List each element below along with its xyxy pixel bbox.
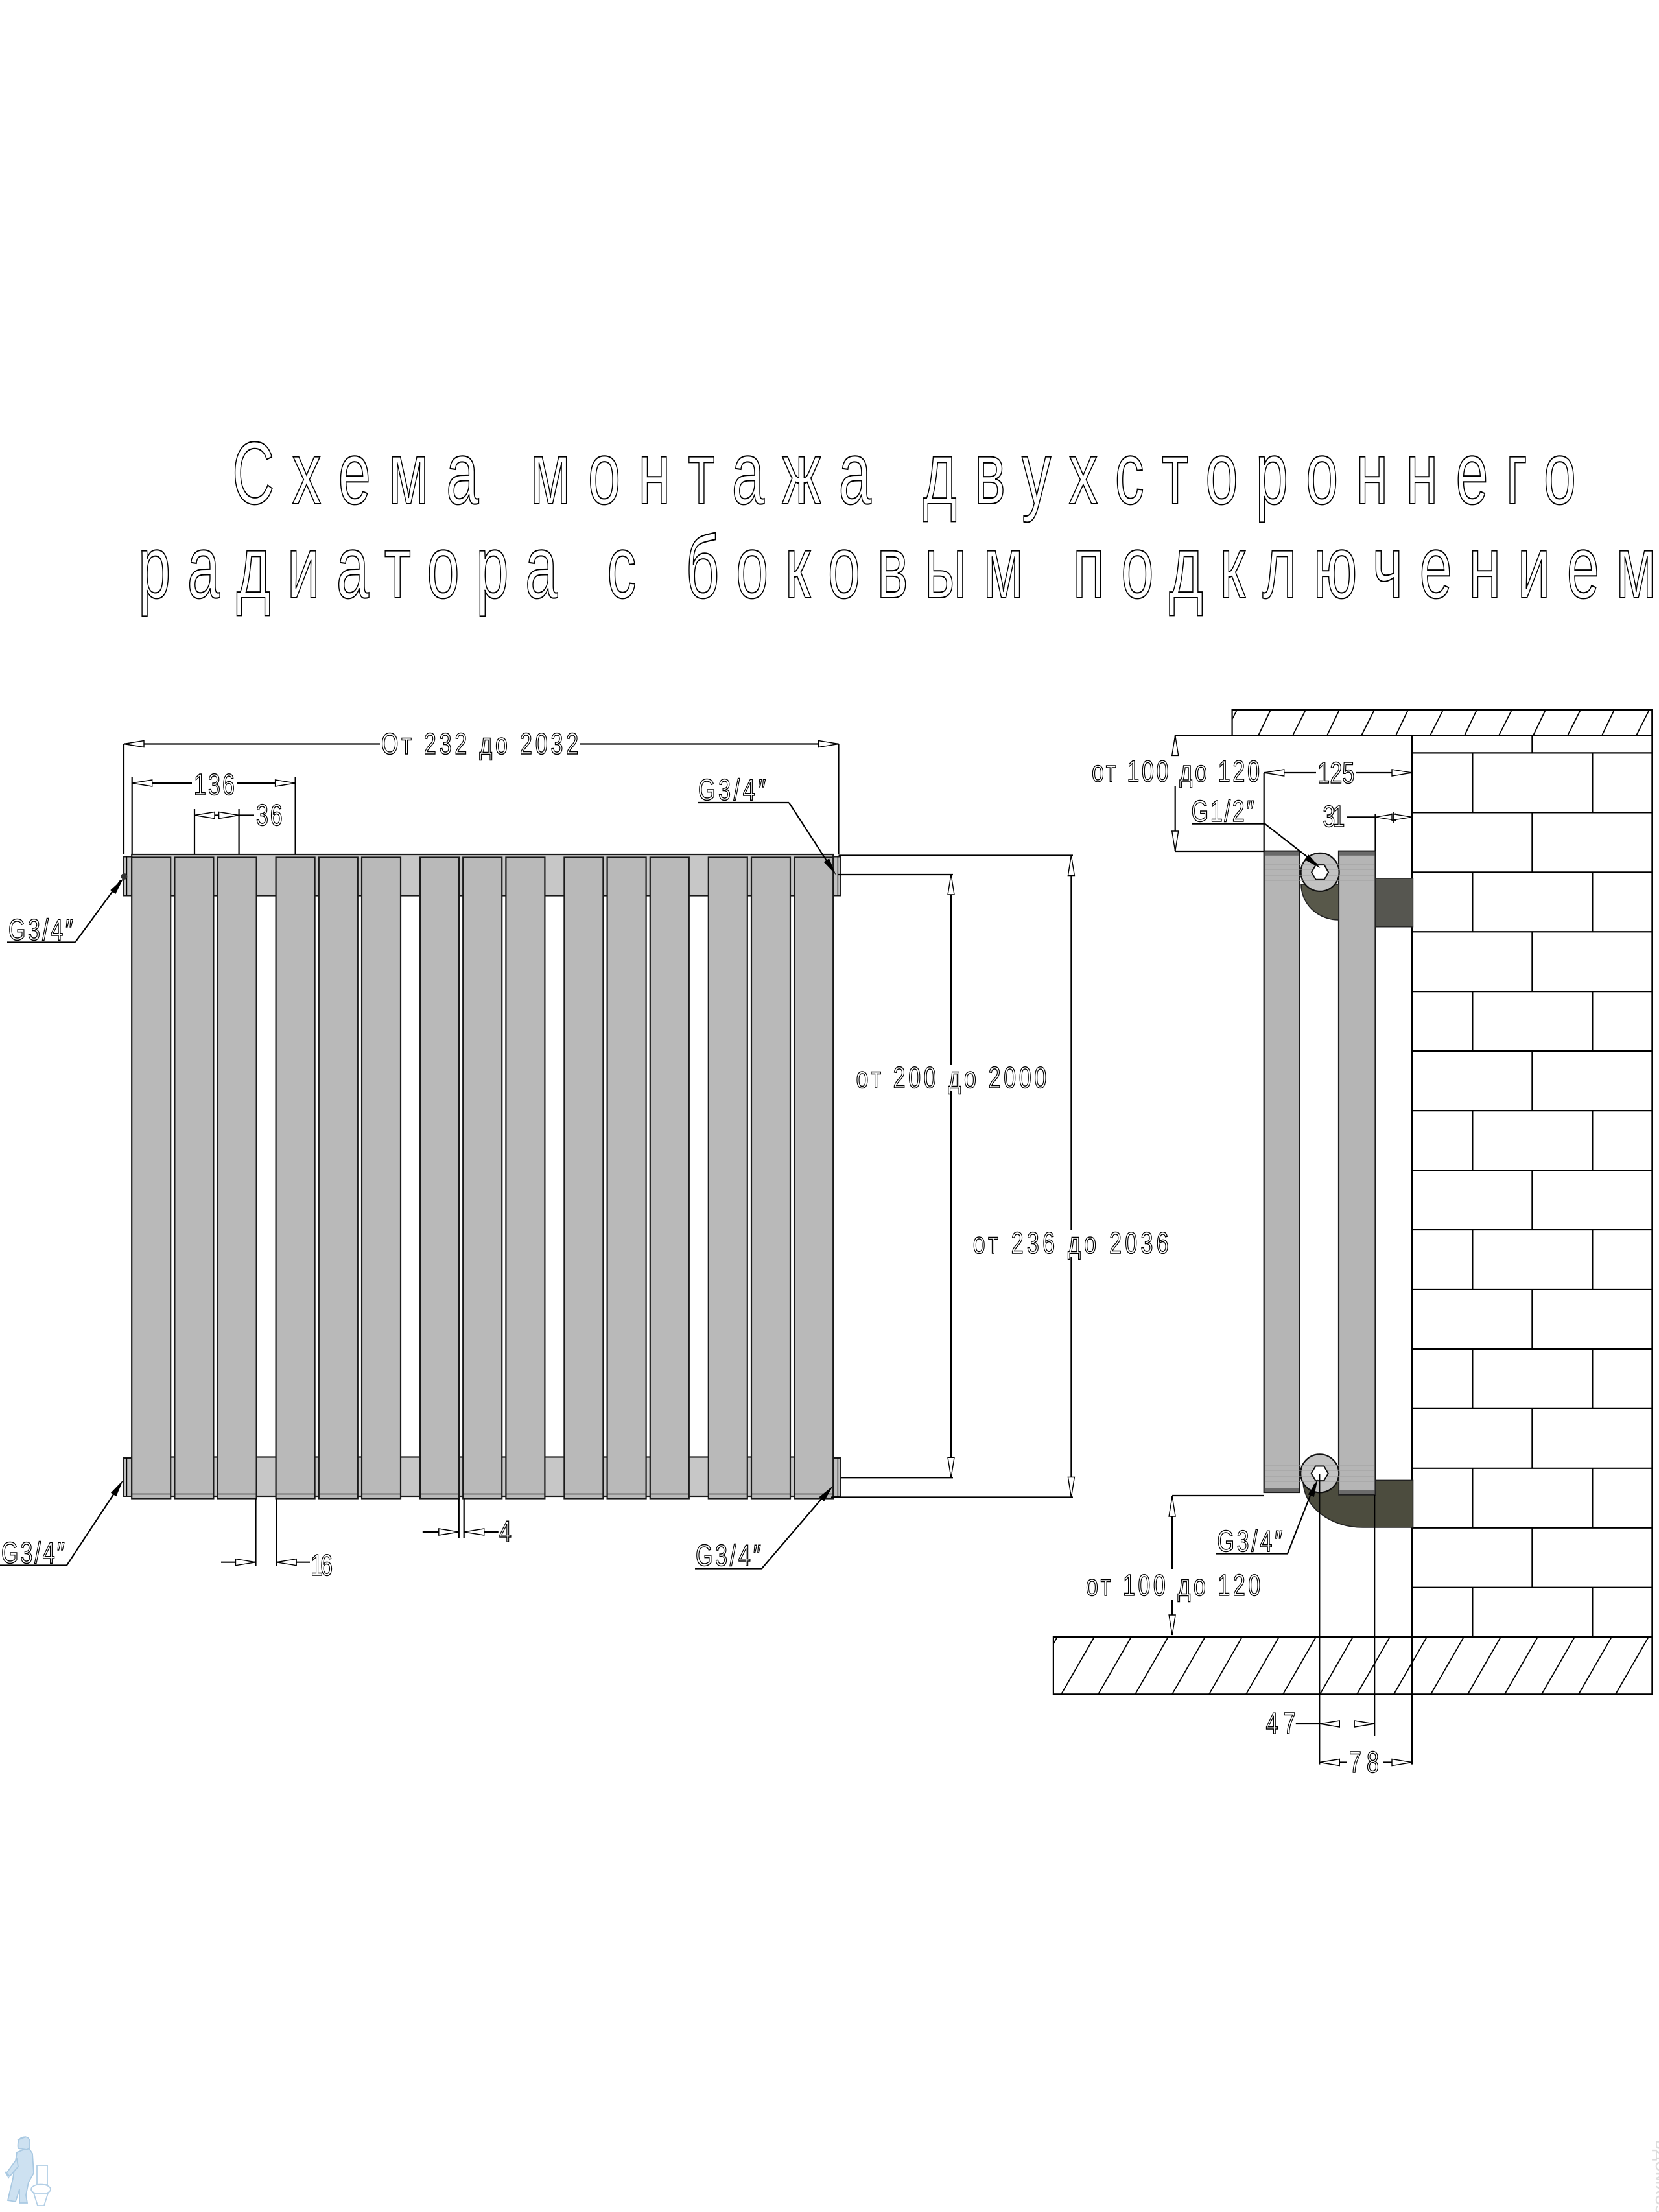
svg-text:вдомхозяйстве: вдомхозяйстве (1651, 2139, 1659, 2212)
svg-text:136: 136 (194, 768, 235, 801)
svg-text:31: 31 (1323, 799, 1345, 833)
svg-text:4: 4 (499, 1514, 512, 1548)
svg-text:16: 16 (311, 1548, 333, 1582)
svg-text:радиатора с боковым подключени: радиатора с боковым подключением (138, 517, 1656, 617)
svg-text:125: 125 (1317, 756, 1354, 790)
